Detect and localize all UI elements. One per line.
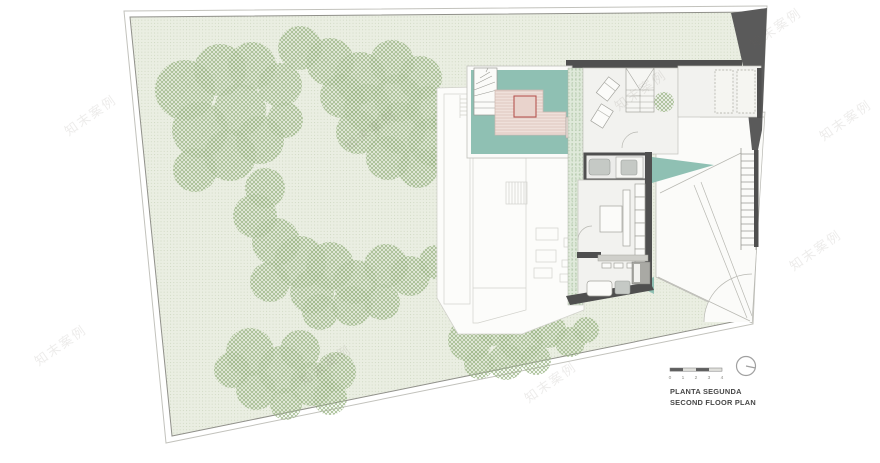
sink-fixture: [621, 160, 637, 175]
shower-fixture: [589, 159, 610, 175]
north-circle-icon: [737, 357, 756, 376]
partition-screen: [623, 190, 630, 246]
scale-label-1: 1: [682, 375, 685, 381]
bathroom: [585, 154, 647, 180]
floor-plan-page: 0 1 2 3 4 PLANTA SEGUNDA SECOND FLOOR PL…: [0, 0, 880, 463]
planter-tree: [654, 92, 674, 112]
scale-bar: 0 1 2 3 4: [669, 368, 724, 381]
skylight-panel: [737, 70, 755, 113]
floor-plan-drawing: 0 1 2 3 4 PLANTA SEGUNDA SECOND FLOOR PL…: [0, 0, 880, 463]
roof-terrace-pool: [467, 66, 584, 158]
toilet-fixture: [615, 281, 630, 294]
skylight-panel: [715, 70, 733, 113]
top-right-room: [678, 66, 762, 118]
bathtub: [587, 281, 612, 296]
scale-label-0: 0: [669, 375, 672, 381]
door-block: [632, 262, 650, 284]
scale-label-4: 4: [721, 375, 724, 381]
plan-title-en: SECOND FLOOR PLAN: [670, 398, 756, 407]
terrace-stair: [474, 68, 497, 115]
title-block: PLANTA SEGUNDA SECOND FLOOR PLAN: [670, 387, 756, 407]
scale-label-3: 3: [708, 375, 711, 381]
lounge-room: [583, 68, 678, 154]
bed: [600, 206, 622, 232]
plan-title-es: PLANTA SEGUNDA: [670, 387, 742, 396]
hot-tub: [514, 96, 536, 117]
scale-label-2: 2: [695, 375, 698, 381]
interior-stair: [626, 68, 654, 112]
closet-cells: [635, 184, 645, 262]
